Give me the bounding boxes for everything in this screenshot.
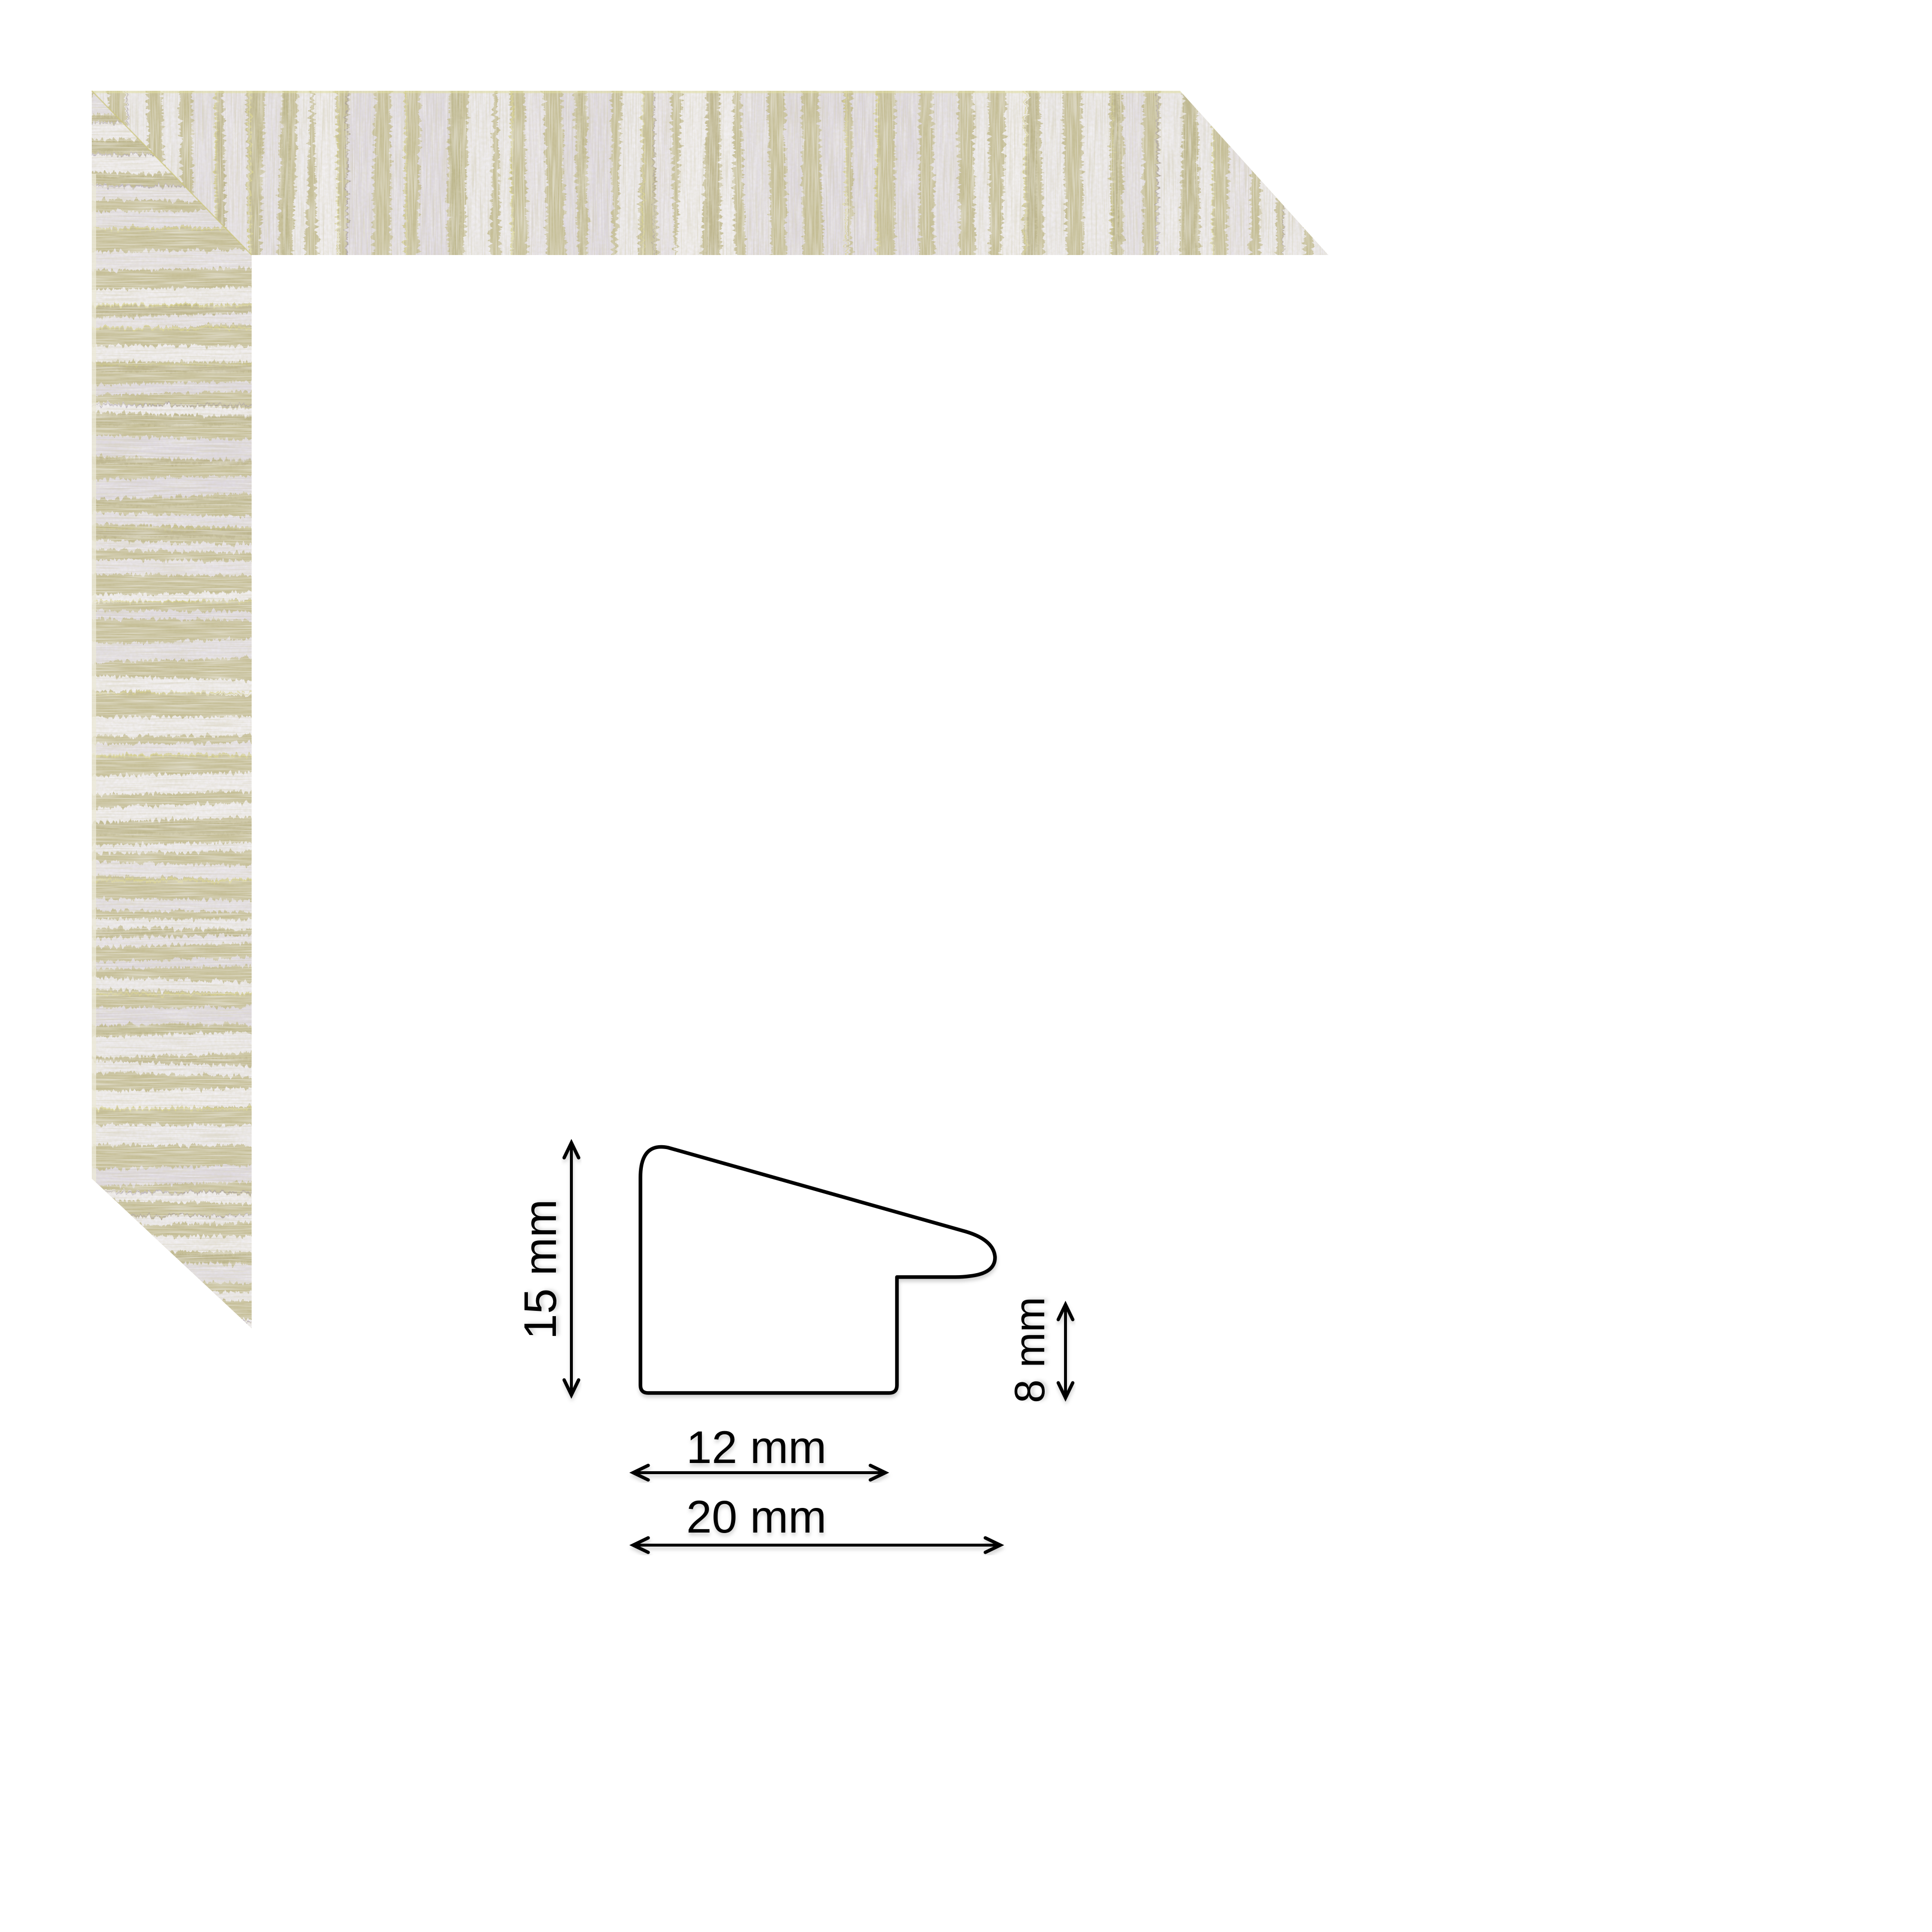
svg-text:8 mm: 8 mm [1006,1297,1053,1403]
svg-text:20 mm: 20 mm [686,1492,826,1543]
svg-text:15 mm: 15 mm [515,1199,566,1339]
svg-text:12 mm: 12 mm [686,1422,826,1473]
